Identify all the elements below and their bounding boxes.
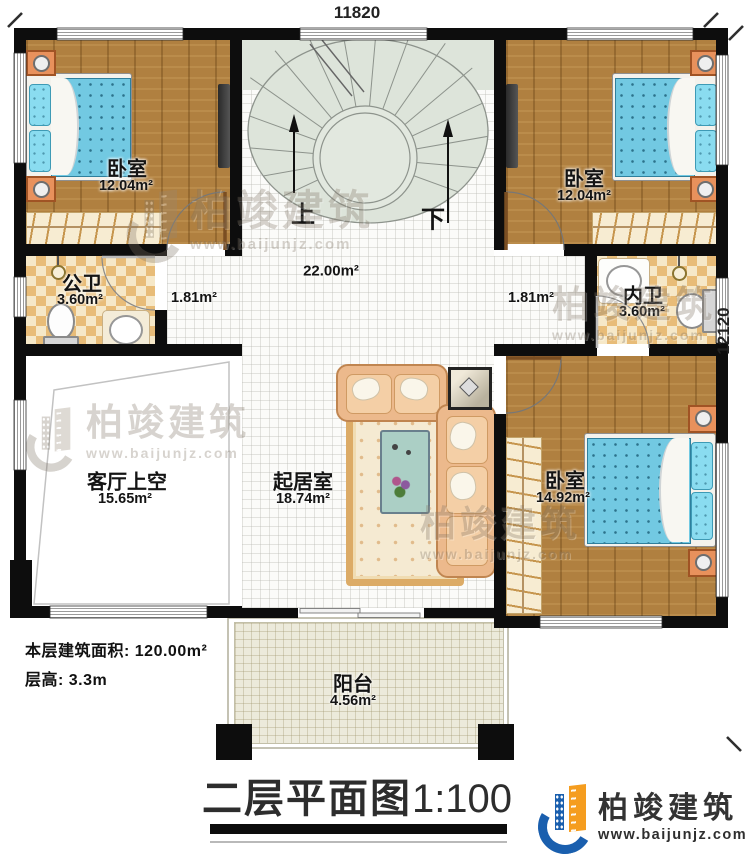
drawing-scale: 1:100 — [412, 777, 512, 821]
room-area-public-bath: 3.60m² — [57, 292, 103, 308]
drawing-title: 二层平面图1:100 — [202, 766, 512, 824]
floor-plan-page: { "dimensions": { "top": "11820", "right… — [0, 0, 750, 856]
spiral-stair — [226, 19, 505, 223]
room-area-living-void: 15.65m² — [98, 491, 152, 507]
stair-down-label: 下 — [421, 200, 445, 235]
room-area-ensuite-bath: 3.60m² — [619, 304, 665, 320]
stair-up-label: 上 — [291, 195, 315, 230]
brand-name: 柏竣建筑 — [598, 783, 747, 827]
sliding-door — [300, 609, 420, 618]
brand-site: www.baijunjz.com — [598, 827, 747, 843]
floor-height-info: 层高: 3.3m — [25, 666, 107, 690]
title-underline-thin — [210, 841, 507, 843]
drawing-title-text: 二层平面图 — [202, 777, 412, 821]
brand-logo-icon — [538, 783, 592, 843]
title-underline — [210, 824, 507, 834]
room-area-bedroom-br: 14.92m² — [536, 490, 590, 506]
room-area-family-room: 18.74m² — [276, 491, 330, 507]
stair-hall-area: 22.00m² — [303, 263, 359, 280]
room-area-bedroom-tl: 12.04m² — [99, 178, 153, 194]
room-area-bedroom-tr: 12.04m² — [557, 188, 611, 204]
hall-right-area: 1.81m² — [508, 290, 554, 306]
dimension-right: 12120 — [714, 307, 734, 354]
room-area-balcony: 4.56m² — [330, 693, 376, 709]
hall-left-area: 1.81m² — [171, 290, 217, 306]
brand-block: 柏竣建筑 www.baijunjz.com — [538, 783, 747, 843]
dimension-top: 11820 — [334, 3, 380, 23]
floor-area-info: 本层建筑面积: 120.00m² — [25, 637, 207, 661]
